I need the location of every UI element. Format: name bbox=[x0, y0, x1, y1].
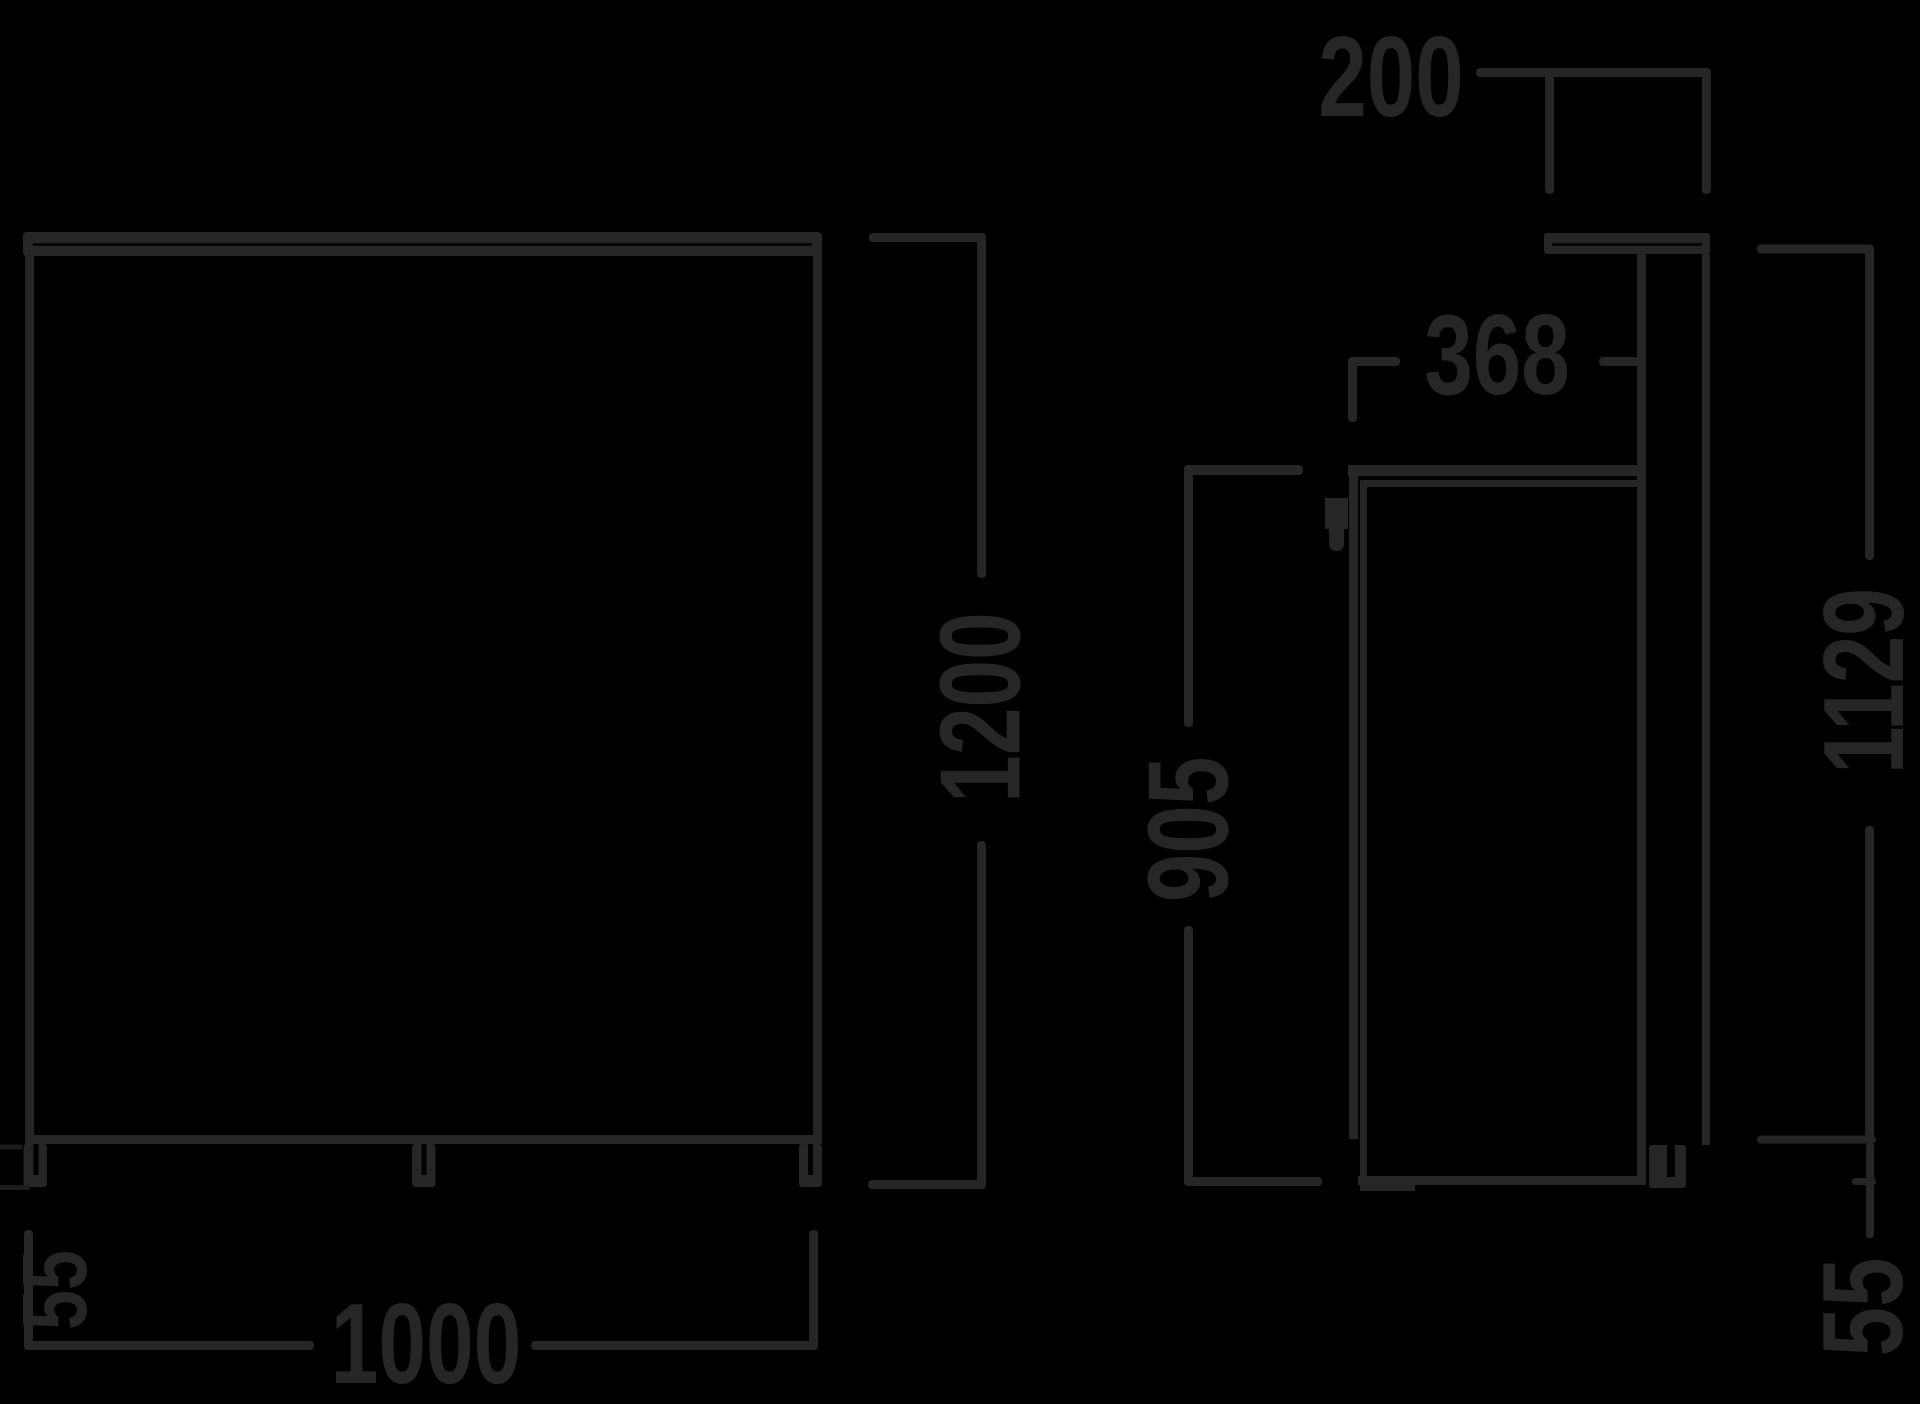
svg-text:368: 368 bbox=[1424, 291, 1569, 419]
svg-text:55: 55 bbox=[1798, 1258, 1920, 1357]
svg-text:55: 55 bbox=[3, 1250, 106, 1330]
svg-text:1200: 1200 bbox=[918, 612, 1045, 803]
svg-text:1000: 1000 bbox=[331, 1281, 522, 1404]
svg-text:1129: 1129 bbox=[1801, 588, 1920, 774]
svg-text:905: 905 bbox=[1124, 757, 1252, 902]
svg-text:200: 200 bbox=[1318, 13, 1463, 141]
